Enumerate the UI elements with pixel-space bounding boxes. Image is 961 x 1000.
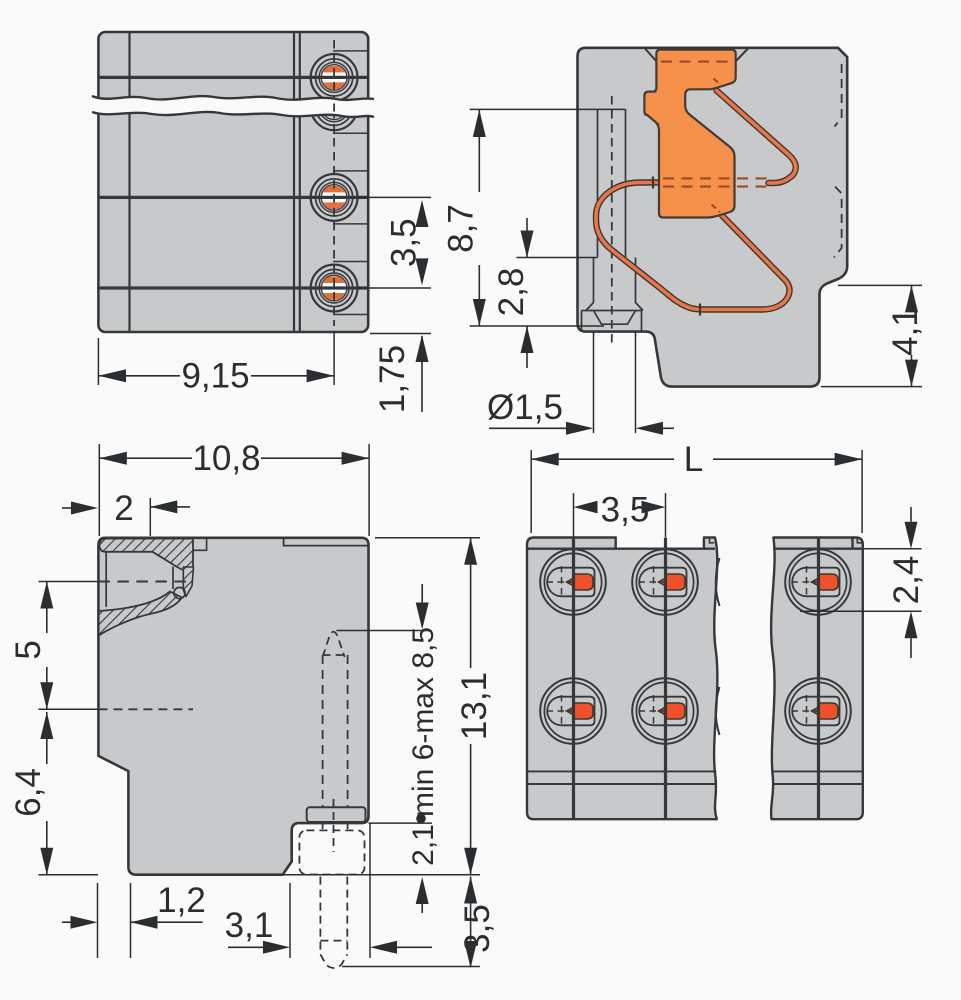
svg-text:3,5: 3,5: [385, 218, 424, 267]
svg-text:2,4: 2,4: [887, 556, 926, 605]
svg-text:10,8: 10,8: [192, 439, 260, 478]
svg-text:3,1: 3,1: [225, 906, 274, 945]
svg-text:Ø1,5: Ø1,5: [487, 388, 563, 427]
svg-text:min 6-max 8,5: min 6-max 8,5: [407, 627, 440, 817]
svg-text:13,1: 13,1: [455, 672, 494, 740]
svg-text:3,5: 3,5: [458, 904, 497, 953]
svg-text:6,4: 6,4: [9, 768, 48, 817]
svg-text:3,5: 3,5: [601, 491, 650, 530]
svg-text:1,2: 1,2: [157, 881, 206, 920]
svg-text:2,1: 2,1: [407, 824, 440, 866]
svg-text:9,15: 9,15: [181, 357, 249, 396]
svg-text:8,7: 8,7: [442, 204, 481, 253]
svg-text:4,1: 4,1: [886, 307, 925, 356]
svg-text:2: 2: [114, 489, 133, 528]
svg-text:5: 5: [9, 640, 48, 659]
svg-text:2,8: 2,8: [492, 268, 531, 317]
svg-text:1,75: 1,75: [373, 345, 412, 413]
svg-text:L: L: [684, 440, 703, 479]
